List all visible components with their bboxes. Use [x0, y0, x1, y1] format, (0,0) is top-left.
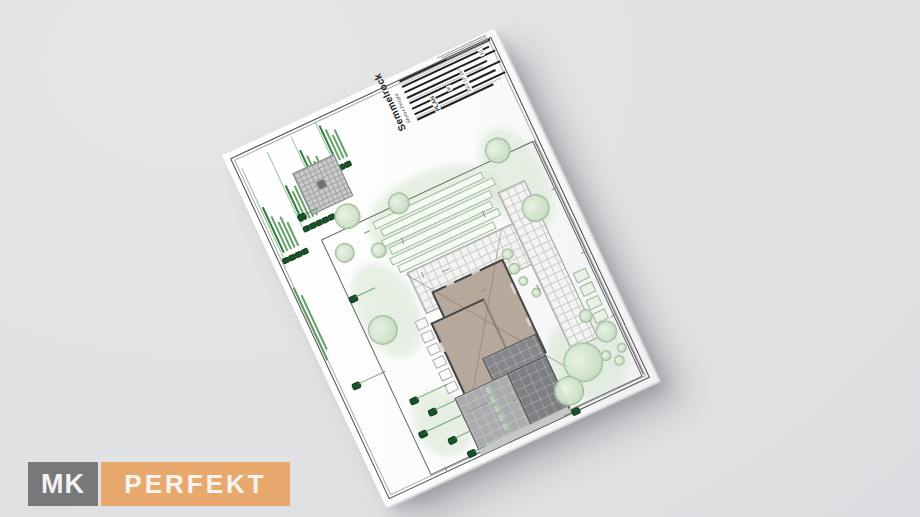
perfekt-badge: PERFEKT	[101, 462, 290, 506]
mk-badge: MK	[28, 462, 98, 506]
mockup-scene: Semmelrock Stein+Design PLAN 2021 LP 167…	[0, 0, 920, 517]
plan-document: Semmelrock Stein+Design PLAN 2021 LP 167…	[222, 29, 658, 507]
mk-perfekt-logo: MK PERFEKT	[28, 462, 290, 506]
